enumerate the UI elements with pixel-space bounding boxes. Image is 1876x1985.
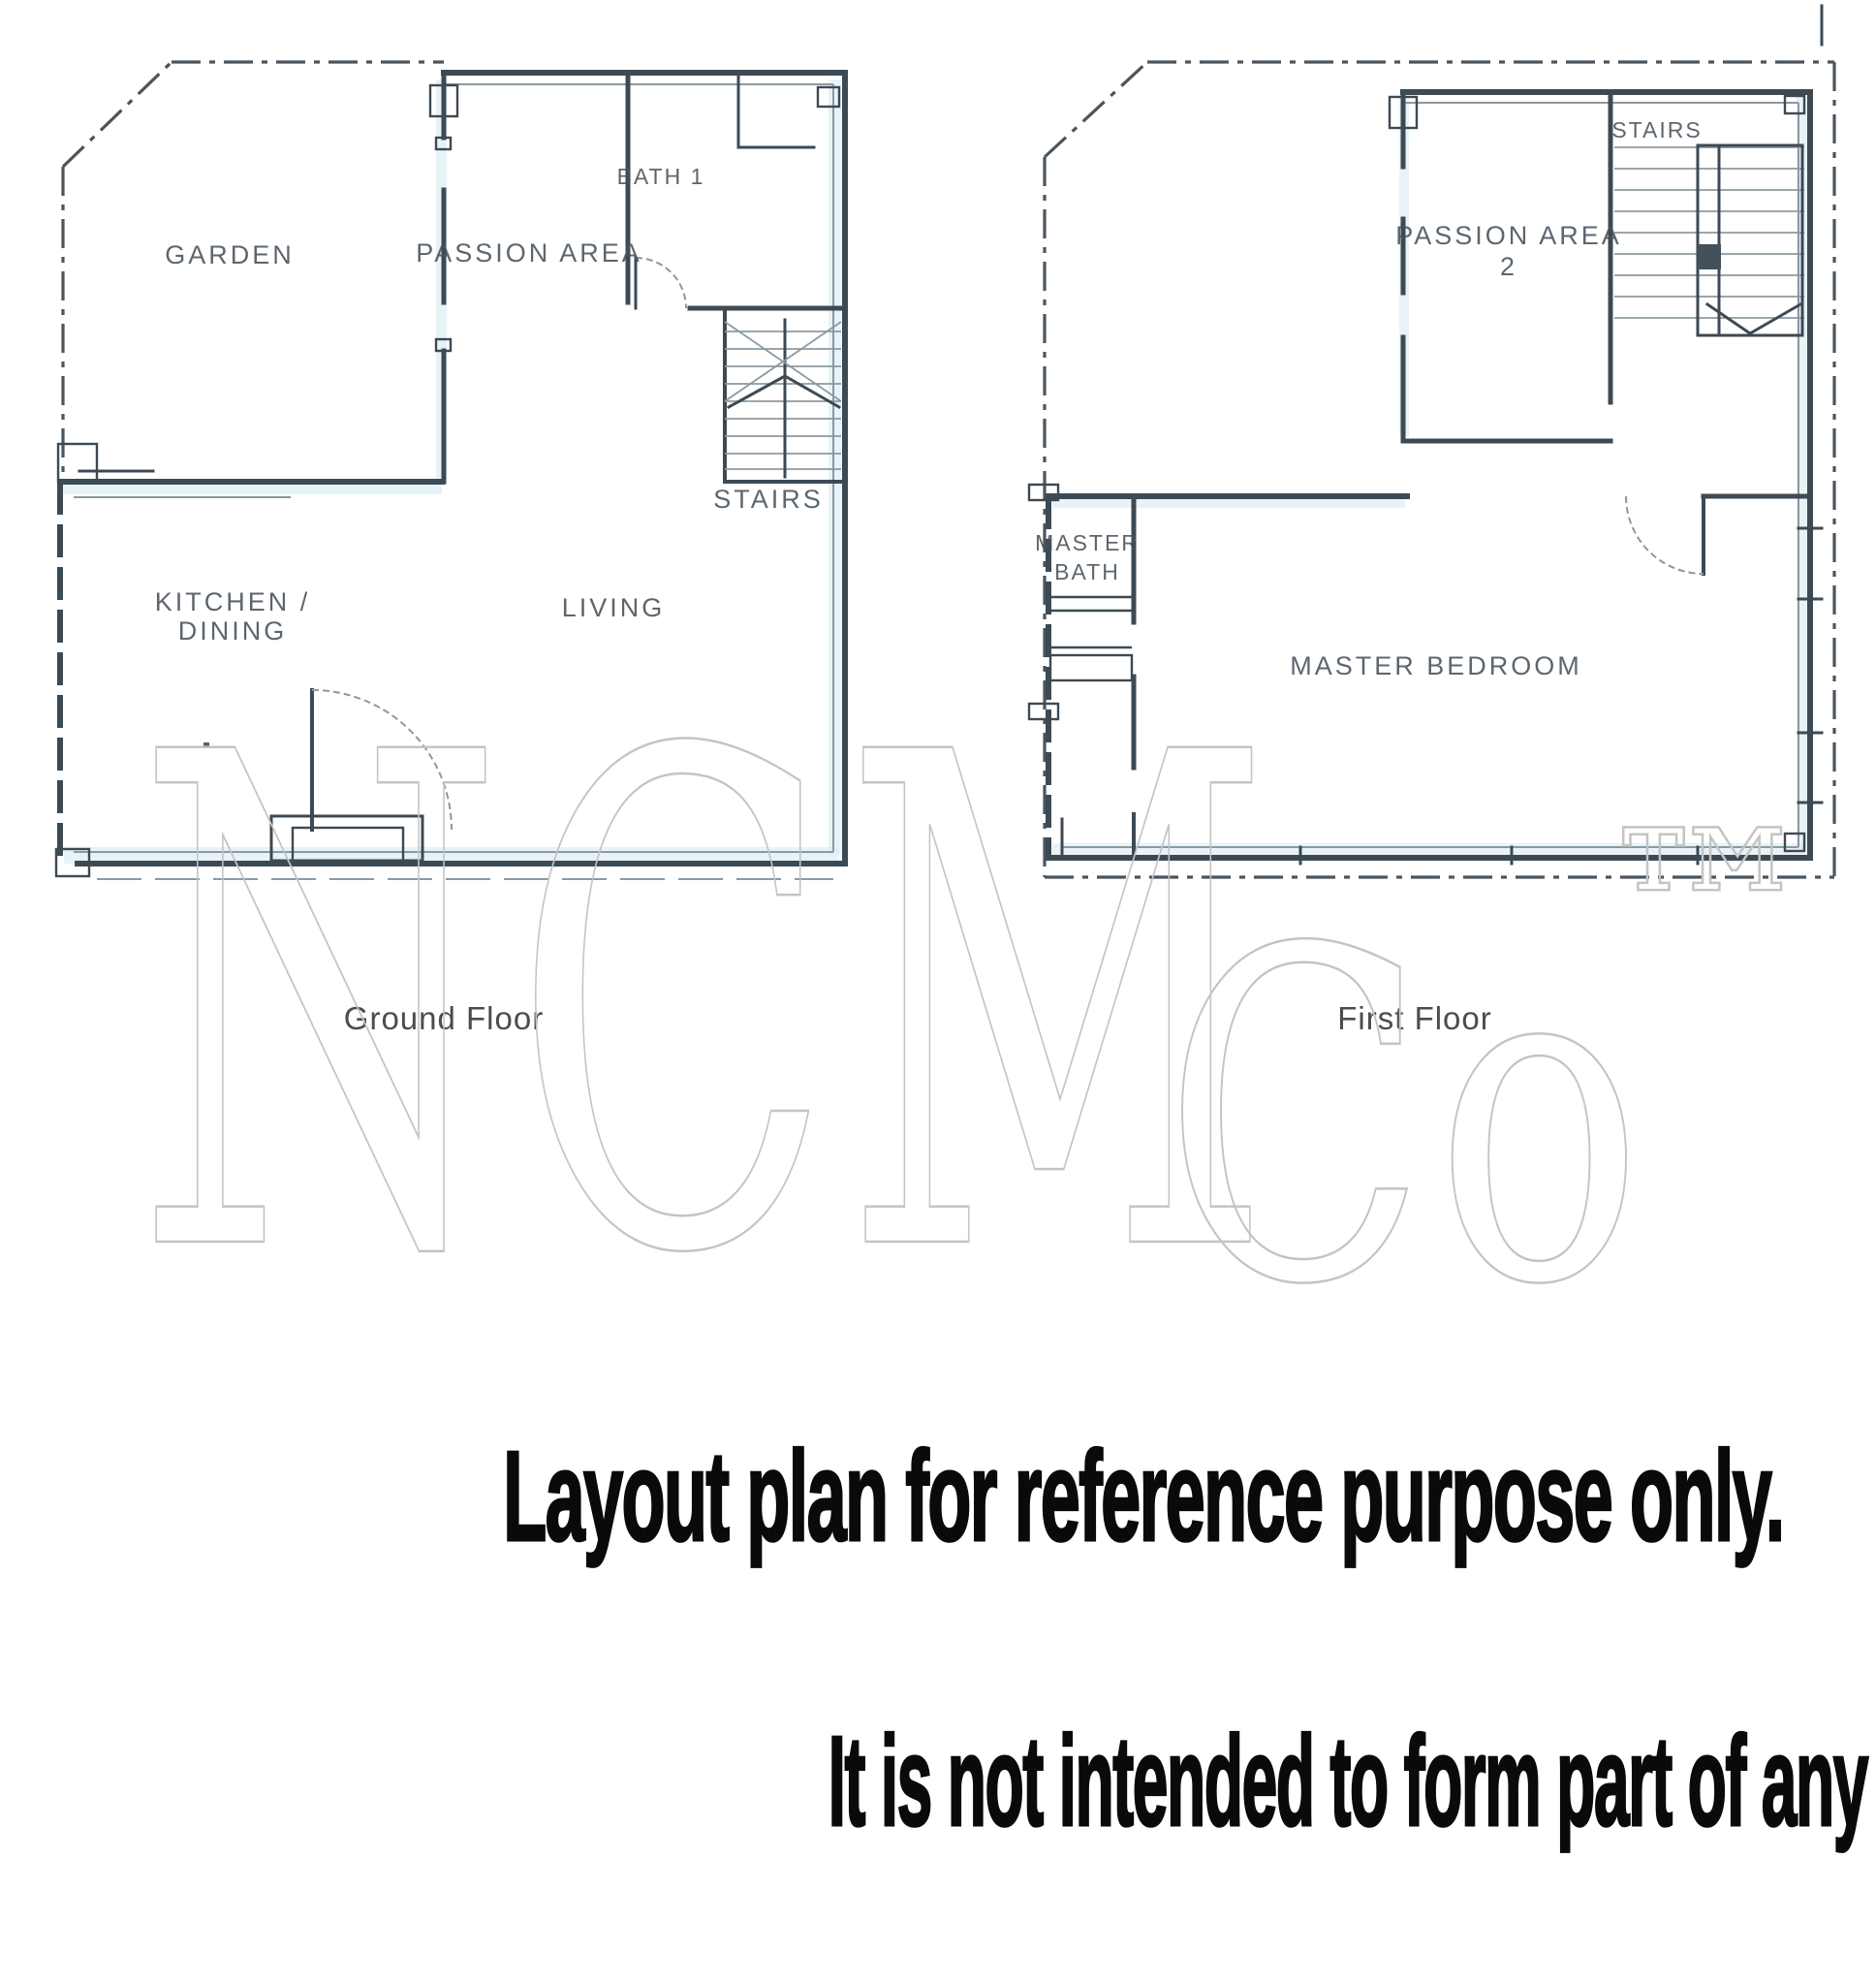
room-label-living: LIVING [562, 593, 666, 622]
room-label-stairs: STAIRS [713, 485, 824, 514]
bedroom-door-arc [1626, 496, 1704, 574]
first-floor-caption: First Floor [1337, 1000, 1492, 1036]
lot-boundary-diagonal [63, 62, 172, 167]
bath-vanity [1050, 655, 1132, 680]
room-label-passion2-line1: PASSION AREA [1395, 221, 1622, 250]
room-label-garden: GARDEN [165, 240, 295, 269]
scan-dot [203, 742, 209, 748]
room-label-kitchen-line1: KITCHEN / [155, 587, 311, 616]
building-outer-wall [78, 73, 845, 864]
ground-stairs [725, 308, 845, 482]
room-label-passion2-line2: 2 [1500, 252, 1517, 281]
room-label-master-bath-line1: MASTER [1035, 530, 1140, 555]
disclaimer-line-1: Layout plan for reference purpose only. [0, 1423, 1876, 1569]
ground-floor-plan: GARDEN PASSION AREA BATH 1 STAIRS LIVING… [56, 62, 845, 1036]
entry-door-arc [312, 690, 452, 830]
bath-fixture-lines [1050, 597, 1134, 647]
wall-shading [1052, 498, 1405, 508]
wall-shading [62, 484, 442, 494]
room-label-bath1: BATH 1 [617, 164, 705, 189]
disclaimer-line-2-text: It is not intended to form part of any c… [829, 1708, 1876, 1854]
bath1-door-arc [636, 258, 686, 308]
room-label-stairs: STAIRS [1611, 117, 1702, 142]
wall-shading [829, 79, 841, 855]
room-label-kitchen-line2: DINING [178, 616, 288, 646]
first-floor-plan: PASSION AREA 2 STAIRS MASTER BATH MASTER… [1029, 6, 1834, 1036]
ground-floor-caption: Ground Floor [344, 1000, 544, 1036]
wall-inner-line [74, 84, 833, 852]
disclaimer-line-1-text: Layout plan for reference purpose only. [503, 1423, 1783, 1569]
floorplan-page: { "watermark": { "part1": "NCM", "part2"… [0, 0, 1876, 1985]
first-floor-stairs [1614, 145, 1804, 335]
stair-cross [725, 322, 841, 401]
stair-treads [1614, 147, 1804, 318]
lot-boundary-diagonal [1045, 62, 1147, 157]
room-label-master-bath-line2: BATH [1054, 559, 1120, 584]
wall-inner-line [1062, 103, 1798, 847]
room-label-master-bedroom: MASTER BEDROOM [1290, 651, 1582, 680]
floor-plans-canvas: GARDEN PASSION AREA BATH 1 STAIRS LIVING… [0, 0, 1876, 1260]
disclaimer-line-2: It is not intended to form part of any c… [0, 1708, 1876, 1854]
room-label-passion-area: PASSION AREA [416, 238, 642, 268]
stair-landing-mark [1698, 244, 1721, 269]
stair-chevron [1707, 304, 1800, 333]
